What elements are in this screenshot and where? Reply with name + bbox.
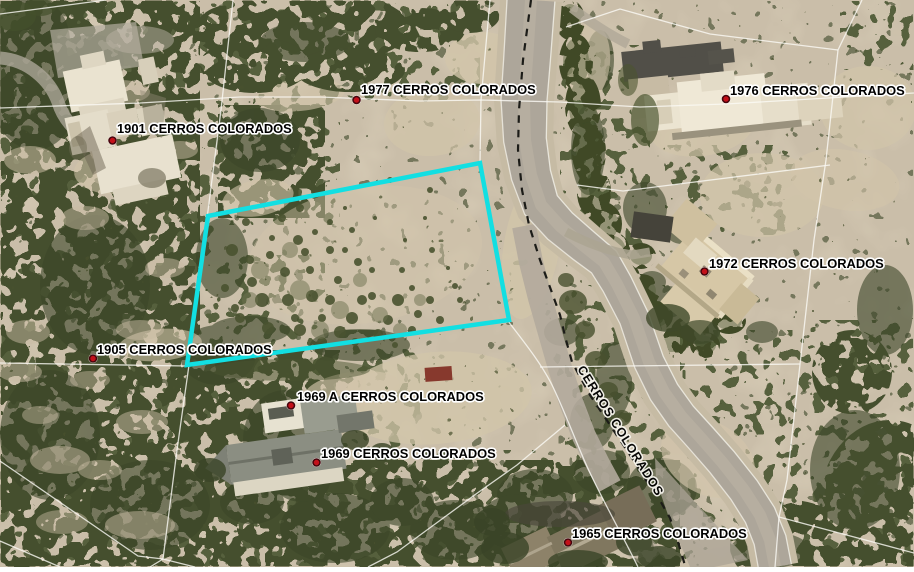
svg-text:1901 CERROS COLORADOS: 1901 CERROS COLORADOS — [117, 121, 292, 136]
svg-text:1977 CERROS COLORADOS: 1977 CERROS COLORADOS — [361, 82, 536, 97]
svg-text:1905 CERROS COLORADOS: 1905 CERROS COLORADOS — [97, 342, 272, 357]
svg-text:1965 CERROS COLORADOS: 1965 CERROS COLORADOS — [572, 526, 747, 541]
svg-text:1969 CERROS COLORADOS: 1969 CERROS COLORADOS — [321, 446, 496, 461]
svg-text:1972 CERROS COLORADOS: 1972 CERROS COLORADOS — [709, 256, 884, 271]
svg-text:1976 CERROS COLORADOS: 1976 CERROS COLORADOS — [730, 83, 905, 98]
svg-text:1969 A CERROS COLORADOS: 1969 A CERROS COLORADOS — [297, 389, 484, 404]
